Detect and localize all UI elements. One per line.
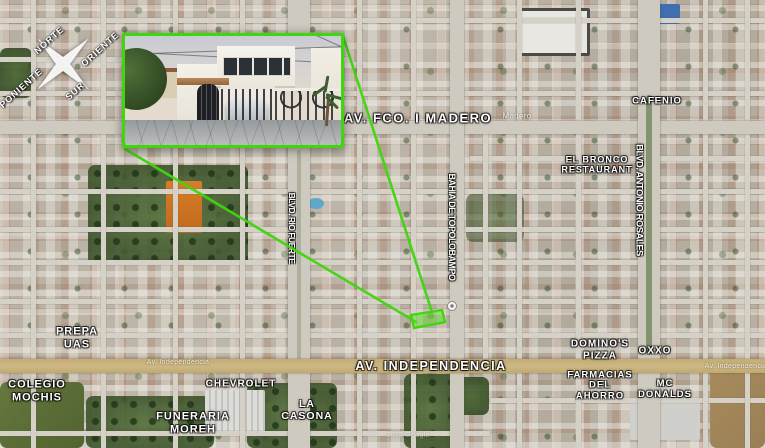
street (703, 0, 708, 448)
poi-line: CASONA (281, 410, 333, 422)
annotated-satellite-map: NORTE ORIENTE PONIENTE SUR Madero Av. In… (0, 0, 765, 448)
poi-line: OXXO (639, 345, 672, 357)
poi-line: PREPA (56, 325, 98, 338)
poi-line: MOREH (156, 423, 230, 436)
poi-label-oxxo: OXXO (639, 345, 672, 357)
driveway (125, 120, 341, 145)
poi-line: PIZZA (571, 350, 629, 362)
street-label-independencia: AV. INDEPENDENCIA (355, 359, 506, 373)
poi-line: FUNERARIA (156, 410, 230, 423)
compass-rose: NORTE ORIENTE PONIENTE SUR (0, 18, 130, 113)
poi-label-mcdonalds: MCDONALDS (638, 379, 692, 401)
poi-label-dominos: DOMINO'SPIZZA (571, 339, 629, 362)
street (517, 0, 522, 448)
poi-line: EL BRONCO (561, 155, 632, 165)
entry-door (197, 84, 219, 124)
poi-label-prepa-uas: PREPAUAS (56, 325, 98, 350)
street-label-rosales: BLVD. ANTONIO ROSALES (633, 144, 644, 256)
vacant-lot-patch (710, 366, 765, 448)
poi-label-la-casona: LACASONA (281, 398, 333, 422)
poi-line: LA (281, 398, 333, 410)
street (483, 130, 488, 360)
faint-street-label: Av. Independencia (705, 363, 765, 371)
poi-line: COLEGIO (8, 378, 66, 391)
poi-label-colegio-mochis: COLEGIOMOCHIS (8, 378, 66, 403)
poi-label-el-bronco: EL BRONCORESTAURANT (561, 155, 632, 176)
poi-line: DOMINO'S (571, 339, 629, 351)
property-photo-inset (122, 33, 344, 148)
boulevard-median (646, 95, 652, 355)
poi-line: UAS (56, 338, 98, 351)
poi-label-chevrolet: CHEVROLET (206, 378, 277, 390)
pool (308, 198, 324, 209)
poi-line: CHEVROLET (206, 378, 277, 390)
poi-label-cafenio: CAFENIO (632, 97, 682, 108)
street-label-topolobampo: BAHIA DE TOPOLOBAMPO (447, 173, 457, 280)
watermark: 2022 Google (386, 432, 429, 440)
street-label-rio-fuerte: BLVD. RIO FUERTE (286, 193, 296, 264)
street (357, 0, 362, 448)
poi-line: AHORRO (567, 391, 632, 401)
street (411, 0, 416, 448)
street-label-madero: AV. FCO. I MADERO (344, 112, 492, 127)
poi-label-farmacias: FARMACIASDELAHORRO (567, 370, 632, 401)
poi-line: DONALDS (638, 390, 692, 401)
trees-patch (466, 194, 524, 242)
poi-line: MOCHIS (8, 391, 66, 404)
poi-line: CAFENIO (632, 97, 682, 108)
upper-window (223, 57, 291, 76)
faint-street-label: Madero (503, 111, 532, 120)
boulevard-median (297, 150, 301, 360)
street (745, 0, 750, 448)
faint-street-label: Av. Independencia (147, 359, 209, 367)
poi-line: RESTAURANT (561, 165, 632, 175)
poi-label-funeraria-moreh: FUNERARIAMOREH (156, 410, 230, 435)
